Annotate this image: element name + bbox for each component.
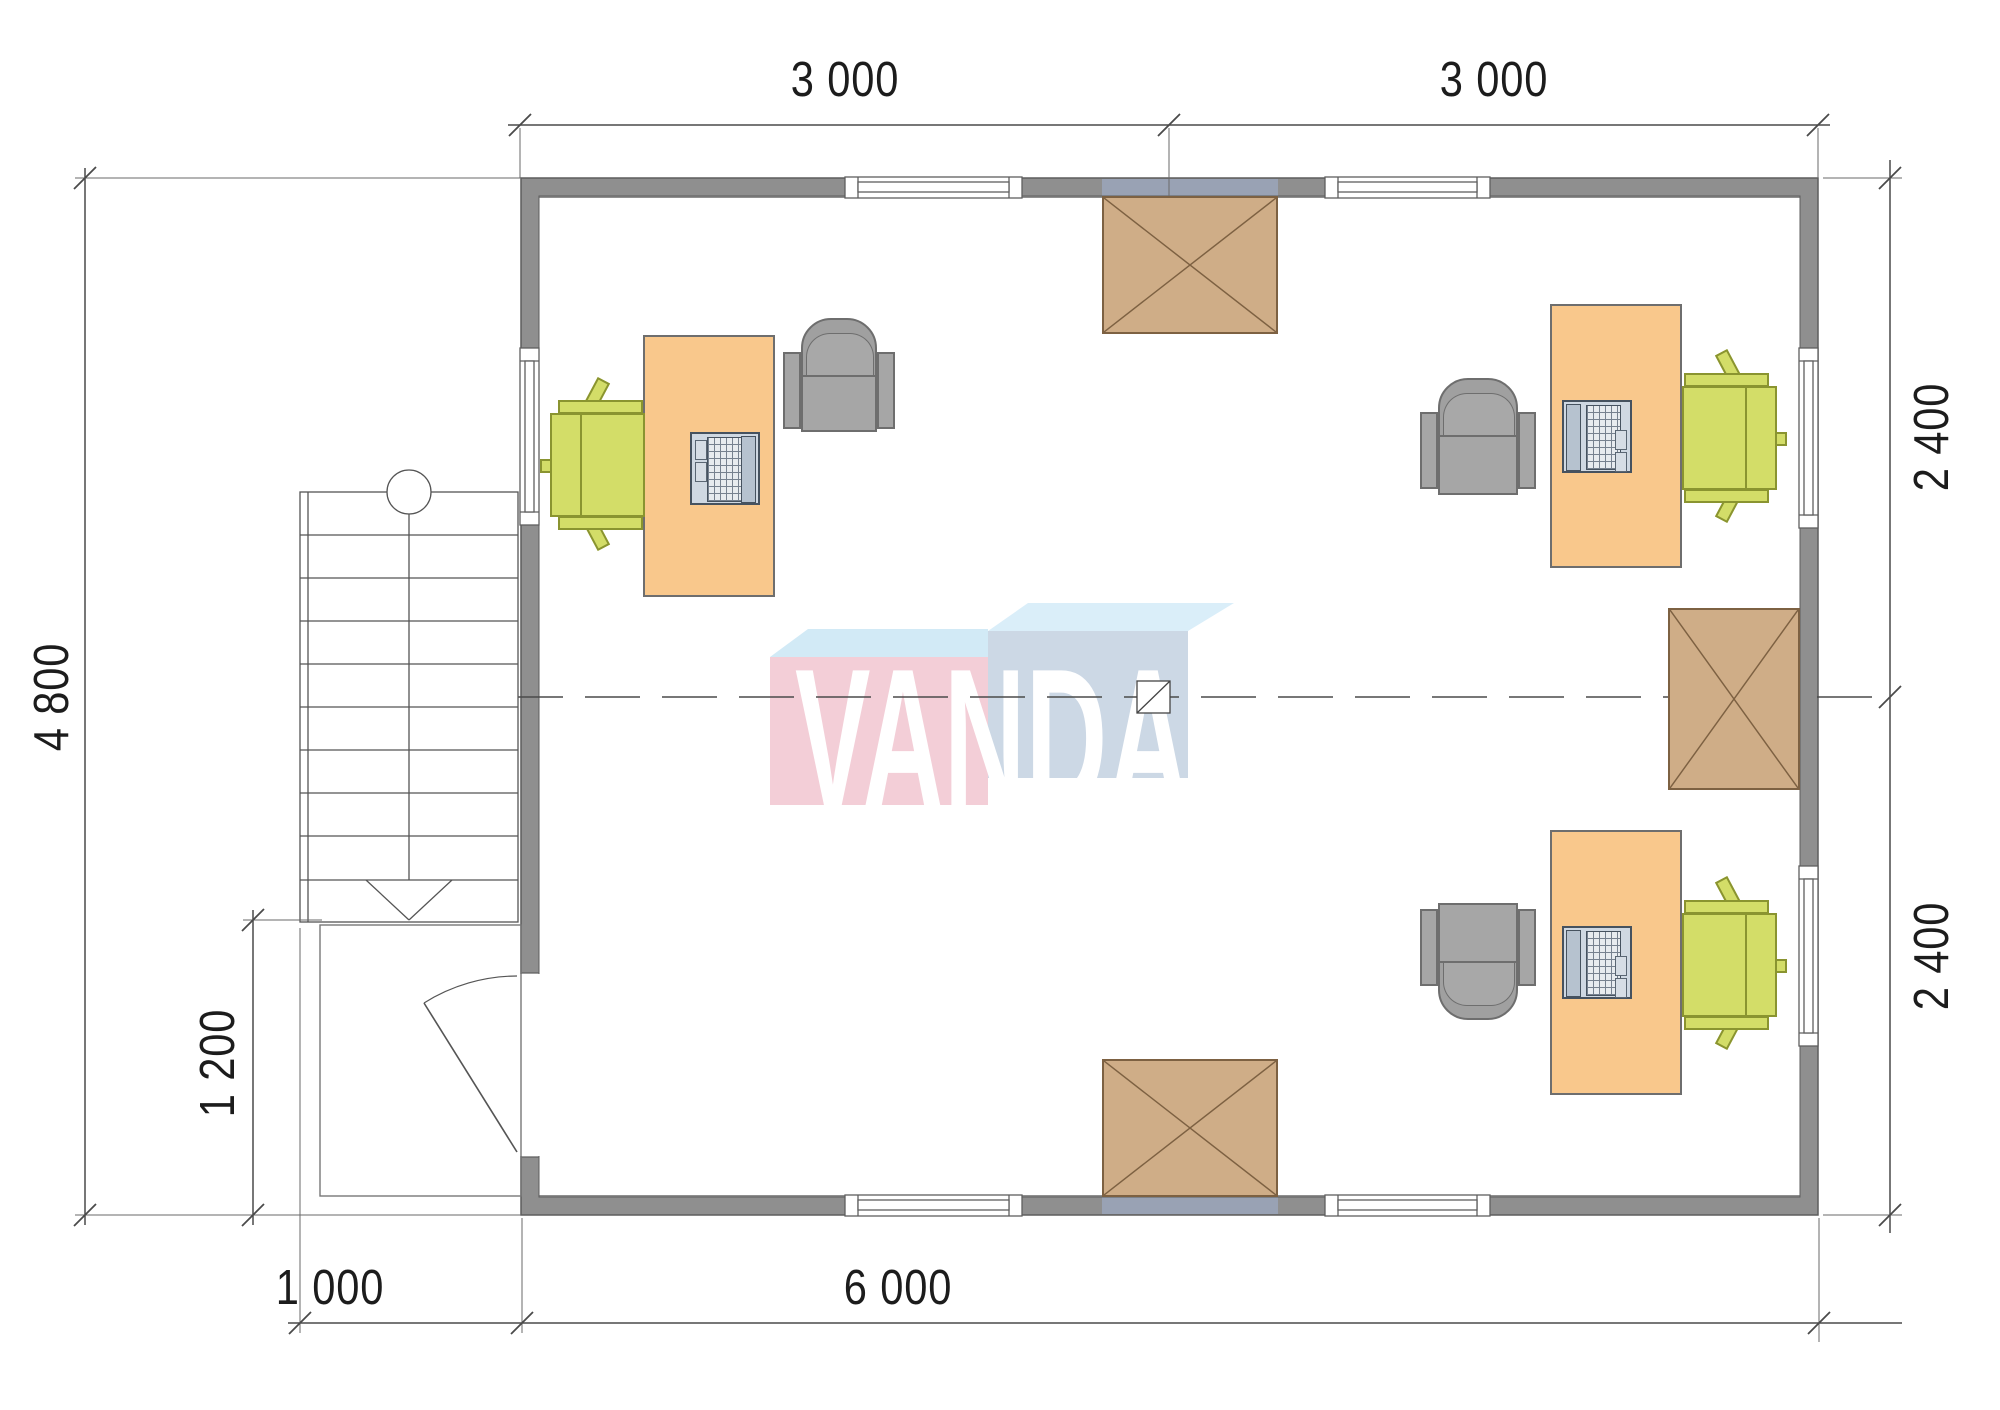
armchair-seat <box>801 375 877 432</box>
window-left <box>520 348 539 525</box>
armchair-armrest <box>1420 412 1438 489</box>
window-right-upper <box>1799 348 1818 528</box>
laptop-top-left <box>690 432 760 505</box>
door-swing-arc <box>424 976 517 1003</box>
dim-bottom-width: 6 000 <box>844 1260 952 1316</box>
dim-left-height: 4 800 <box>24 643 80 751</box>
stair-start-marker <box>387 470 431 514</box>
center-marker <box>1130 675 1180 720</box>
window-top-left <box>845 177 1022 198</box>
entrance-door <box>424 973 541 1157</box>
dim-porch-height: 1 200 <box>190 1009 246 1117</box>
chair-armrest <box>1684 373 1769 387</box>
armchair-seat <box>1438 903 1518 963</box>
staircase <box>300 470 518 922</box>
window-right-lower <box>1799 866 1818 1046</box>
chair-armrest <box>1684 1016 1769 1030</box>
chair-seat <box>550 413 645 517</box>
dim-right-lower-span: 2 400 <box>1904 902 1960 1010</box>
chair-seat <box>1682 913 1777 1017</box>
window-bottom-right <box>1325 1195 1490 1216</box>
window-bottom-left <box>845 1195 1022 1216</box>
laptop-top-right <box>1562 400 1632 473</box>
window-top-right <box>1325 177 1490 198</box>
hatch-box-bottom <box>1102 1059 1278 1197</box>
armchair-armrest <box>1518 412 1536 489</box>
armchair-armrest <box>783 352 801 429</box>
chair-seat <box>1682 386 1777 490</box>
chair-armrest <box>558 516 643 530</box>
dim-top-right-span: 3 000 <box>1440 52 1548 108</box>
hatch-box-right <box>1668 608 1800 790</box>
floor-plan-canvas: VANDA <box>0 0 2000 1410</box>
laptop-bottom-right <box>1562 926 1632 999</box>
armchair-armrest <box>1518 909 1536 986</box>
door-leaf <box>424 1003 517 1152</box>
chair-armrest <box>558 400 643 414</box>
armchair-seat <box>1438 435 1518 495</box>
armchair-armrest <box>877 352 895 429</box>
chair-armrest <box>1684 900 1769 914</box>
porch-outline <box>320 925 521 1196</box>
dim-top-left-span: 3 000 <box>791 52 899 108</box>
hatch-box-top <box>1102 196 1278 334</box>
dim-right-upper-span: 2 400 <box>1904 383 1960 491</box>
dim-porch-width: 1 000 <box>276 1260 384 1316</box>
chair-armrest <box>1684 489 1769 503</box>
armchair-armrest <box>1420 909 1438 986</box>
